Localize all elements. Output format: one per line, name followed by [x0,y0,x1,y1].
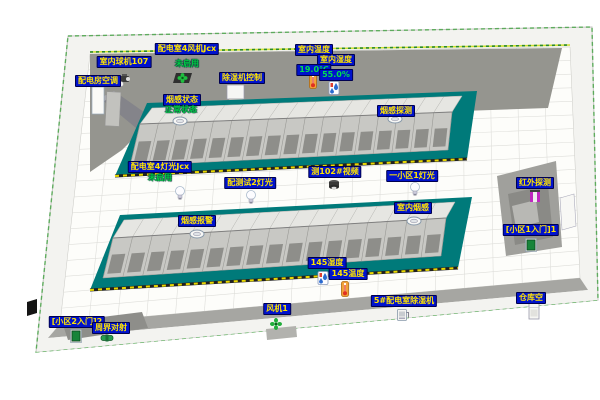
smoke-detect-label[interactable]: 烟感探测 [377,105,415,117]
indoor-dome-camera-107-label[interactable]: 室内球机107 [97,56,152,68]
dehumidifier-control-label[interactable]: 除湿机控制 [219,72,265,84]
perimeter-beam-label[interactable]: 周界对射 [92,322,130,334]
dehumidifier-icon[interactable] [397,309,410,322]
door-icon[interactable] [70,329,82,343]
infrared-detect-label[interactable]: 红外探测 [516,177,554,189]
thermometer-icon[interactable] [341,281,350,297]
dehumidifier-5-label[interactable]: 5#配电室除湿机 [371,295,437,307]
annotation-overlay: 室内球机107配电房空调配电室4风机Jcx未启用除湿机控制室内温度室内湿度19.… [0,0,600,400]
humidity-icon[interactable] [318,271,329,285]
door-icon[interactable] [525,238,537,252]
dome-camera-icon[interactable] [327,178,341,192]
infrared-icon[interactable] [529,189,541,203]
power-room-4-light-label[interactable]: 配电室4灯光Jcx [128,161,192,173]
bulb-icon[interactable] [409,181,421,199]
indoor-humidity-value-label: 55.0% [319,69,353,81]
area1-light-label[interactable]: 一小区1灯光 [386,170,438,182]
light-status-label: 未启用 [146,173,174,183]
smoke-alarm-label[interactable]: 烟感报警 [178,215,216,227]
cabinet-icon[interactable] [529,303,540,320]
fan-1-label[interactable]: 风机1 [263,303,291,315]
fan-dark-icon[interactable] [173,71,193,85]
smoke-detector-icon[interactable] [172,116,188,126]
temp-145-label[interactable]: 145温度 [329,268,368,280]
test-2-light-label[interactable]: 配测试2灯光 [224,177,276,189]
fan-status-label: 未启用 [173,59,201,69]
smoke-status-value-label: 正常状态 [163,105,199,115]
fan-green-icon[interactable] [269,317,283,331]
video-102-label[interactable]: 测102#视频 [308,166,361,178]
humidity-icon[interactable] [329,81,340,95]
beam-device-icon[interactable] [101,334,114,342]
area1-entrance-label[interactable]: [小区1入门]1 [503,224,559,236]
power-room-ac-label[interactable]: 配电房空调 [75,75,121,87]
scada-3d-room-view: 室内球机107配电房空调配电室4风机Jcx未启用除湿机控制室内温度室内湿度19.… [0,0,600,400]
warehouse-ac-label[interactable]: 仓库空 [516,292,546,304]
bulb-icon[interactable] [245,189,257,207]
power-room-4-fan-label[interactable]: 配电室4风机Jcx [155,43,219,55]
indoor-smoke-label[interactable]: 室内烟感 [394,202,432,214]
smoke-detector-icon[interactable] [406,216,422,226]
smoke-detector-icon[interactable] [189,229,205,239]
bulb-icon[interactable] [174,185,186,203]
